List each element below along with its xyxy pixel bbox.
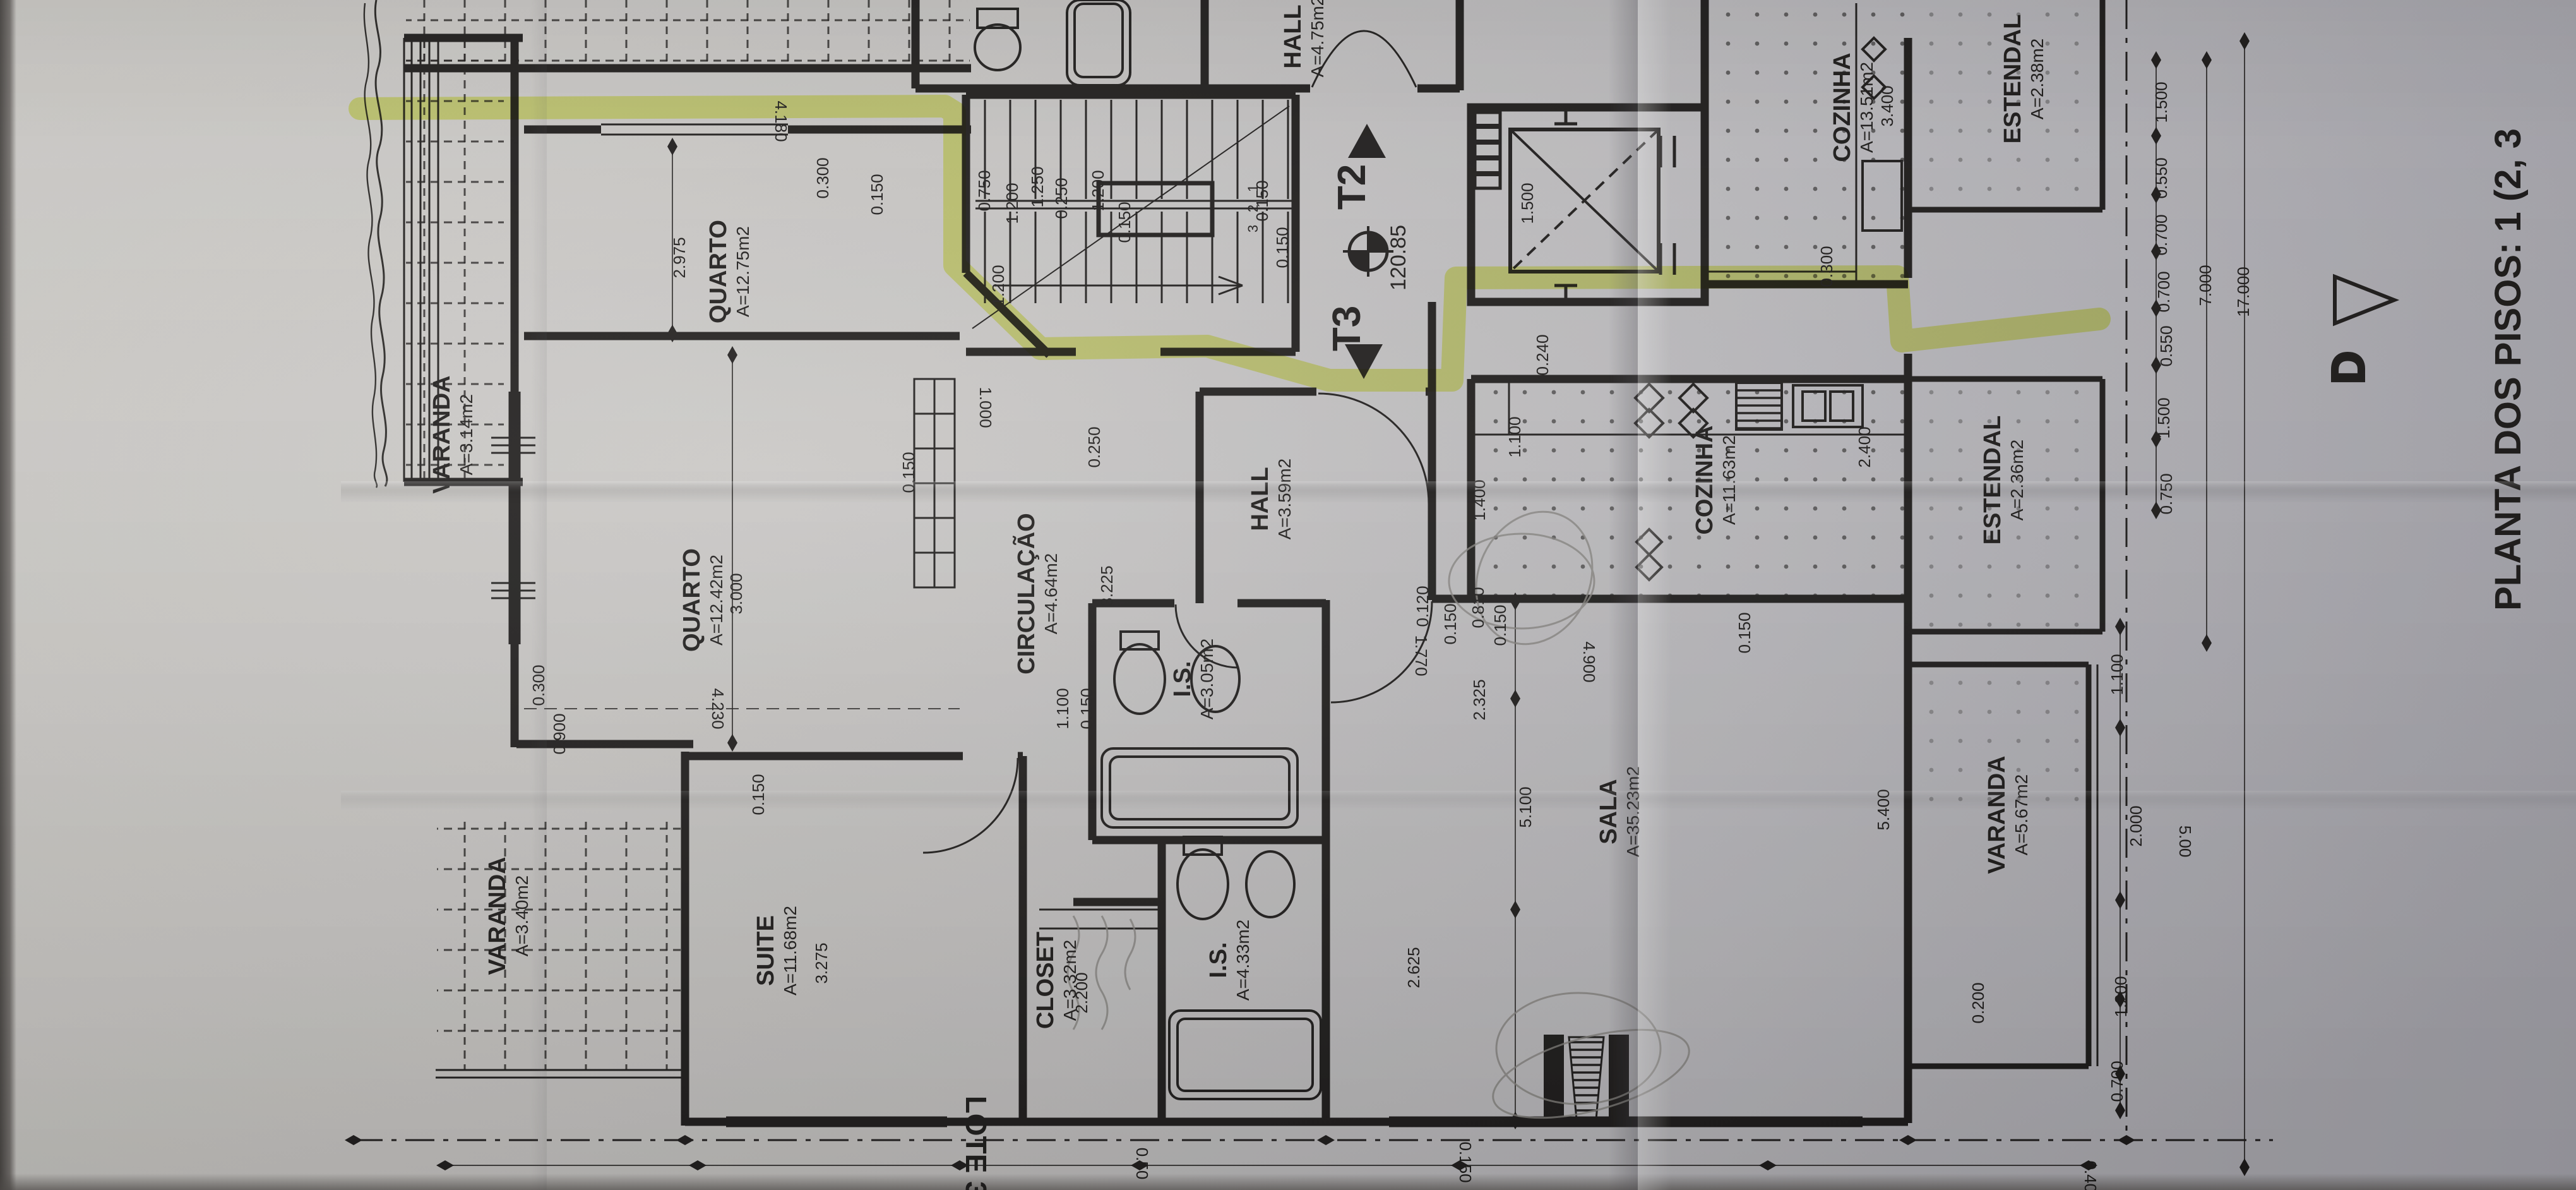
dim-label: 1.200 [2111, 976, 2130, 1017]
stair-direction-arrow [994, 277, 1243, 294]
dim-label: 0.150 [1273, 227, 1292, 268]
room-label: COZINHA [1691, 425, 1718, 534]
dim-label: 0.150 [1491, 604, 1510, 646]
dim-label: 7.000 [2196, 265, 2215, 306]
dim-label: 3.275 [812, 942, 831, 983]
dim-label: 3.000 [727, 573, 746, 614]
room-area-label: A=4.75m2 [1308, 0, 1327, 77]
room-label: I.S. [1205, 942, 1232, 978]
dim-label: 2.000 [2126, 805, 2145, 846]
dim-label: 0.120 [1413, 586, 1432, 627]
bathtub-icon [1102, 748, 1297, 827]
dishwasher-icon [1736, 383, 1782, 430]
room-area-label: A=12.75m2 [733, 226, 753, 317]
room-area-label: A=11.68m2 [780, 906, 800, 995]
room-area-label: A=12.42m2 [707, 555, 726, 646]
dim-label: 2.325 [1470, 679, 1489, 720]
room-label: CIRCULAÇÃO [1012, 513, 1040, 674]
dim-label: 0.900 [550, 713, 569, 754]
dim-label: 2.975 [670, 237, 689, 278]
stair-number: 2 [1245, 205, 1261, 212]
dim-label: 4.180 [772, 100, 790, 141]
unit-t2-label: T2 [1330, 164, 1374, 210]
stair-number: 1 [1245, 184, 1261, 192]
room-label: VARANDA [1984, 755, 2010, 874]
dim-label: 2.625 [1404, 947, 1423, 988]
dim-label: 0.150 [1735, 612, 1754, 653]
dim-label: 1.770 [1412, 635, 1431, 676]
unit-t3-label: T3 [1325, 306, 1369, 351]
bidet-icon [1246, 851, 1294, 917]
dim-label: 0.750 [975, 170, 994, 211]
room-area-label: A=4.64m2 [1041, 553, 1061, 634]
upper-kitchen-tile-dots [1708, 3, 1907, 281]
room-label: I.S. [1169, 661, 1196, 697]
balcony-hatch-bottom [437, 816, 683, 1070]
dim-label: 0.700 [2154, 271, 2173, 312]
dim-label: 5.00 [2176, 826, 2195, 858]
dim-label: 3.400 [1878, 85, 1897, 126]
dim-label: 0.550 [2157, 325, 2176, 366]
room-label: CLOSET [1032, 932, 1059, 1029]
dim-label: 0.300 [813, 157, 832, 198]
section-letter: D [2323, 351, 2374, 384]
floor-plan-photo: VARANDAA=3.14m2QUARTOA=12.75m2QUARTOA=12… [0, 0, 2576, 1190]
room-label: QUARTO [679, 548, 705, 652]
dim-label: 1.000 [976, 387, 995, 428]
dim-label: 2.200 [1072, 972, 1091, 1013]
room-area-label: A=3.14m2 [456, 394, 476, 475]
section-marker-icon [2335, 277, 2394, 323]
dim-label: 2.400 [1855, 426, 1874, 467]
dim-label: 1.100 [1053, 688, 1072, 729]
torn-edge-sketch [364, 0, 387, 488]
toilet-tank-icon [1121, 632, 1159, 649]
level-value: 120.85 [1386, 225, 1410, 291]
dim-label: 0.150 [868, 174, 886, 215]
top-balcony-hatch [406, 0, 970, 66]
room-area-label: A=13.51m2 [1857, 62, 1876, 153]
room-label: VARANDA [429, 375, 455, 493]
room-area-label: A=3.40m2 [512, 875, 532, 956]
dim-label: 0.200 [1969, 982, 1988, 1023]
room-label: ESTENDAL [1979, 416, 2006, 545]
floor-plan-svg: VARANDAA=3.14m2QUARTOA=12.75m2QUARTOA=12… [0, 0, 2576, 1190]
room-label: ESTENDAL [2000, 15, 2026, 144]
dim-label: 1.200 [989, 265, 1008, 306]
drawing-title: PLANTA DOS PISOS: 1 (2, 3 [2488, 128, 2529, 611]
bathtub-icon [1169, 1011, 1321, 1099]
dim-label: 4.900 [1580, 641, 1599, 682]
dim-label: 1.200 [1003, 183, 1022, 224]
dim-label: 0.810 [1469, 587, 1488, 628]
room-label: COZINHA [1829, 52, 1856, 162]
dim-label: 4.230 [708, 688, 727, 729]
dim-label: 0.50 [1133, 1148, 1152, 1180]
room-area-label: A=2.36m2 [2007, 440, 2027, 520]
dim-label: 3.225 [1097, 565, 1116, 606]
dim-label: 17.000 [2234, 267, 2253, 317]
dim-label: 0.300 [1817, 246, 1836, 287]
room-label: VARANDA [484, 856, 511, 975]
room-label: SUITE [753, 915, 779, 986]
room-area-label: A=3.05m2 [1197, 639, 1217, 719]
dim-label: 0.700 [2152, 214, 2171, 255]
stair-number: 3 [1245, 225, 1261, 232]
room-area-label: A=5.67m2 [2012, 774, 2031, 855]
dim-label: 1.500 [2152, 81, 2171, 123]
dim-label: 0.240 [1533, 334, 1552, 375]
dim-label: 1.100 [2108, 654, 2126, 695]
dim-label: 1.250 [1028, 166, 1047, 207]
dim-label: 0.250 [1052, 177, 1071, 219]
lot-label: LOTE 31 [960, 1096, 993, 1190]
dim-label: 0.150 [1456, 1141, 1475, 1182]
toilet-icon [975, 25, 1020, 70]
level-marker-icon [1343, 226, 1393, 277]
dim-label: 0.250 [1085, 426, 1104, 467]
dim-label: 0.150 [1441, 603, 1460, 644]
room-area-label: A=4.33m2 [1233, 920, 1253, 1001]
room-area-label: A=11.63m2 [1719, 435, 1739, 525]
dim-label: 0.400 [2081, 1160, 2100, 1190]
room-area-label: A=2.38m2 [2027, 39, 2047, 119]
room-label: QUARTO [705, 220, 732, 323]
dim-label: 1.100 [1505, 416, 1524, 457]
dim-label: 1.500 [2154, 397, 2173, 438]
dim-label: 0.700 [2108, 1061, 2126, 1102]
toilet-icon [1114, 644, 1165, 714]
dim-label: 1.200 [1088, 170, 1107, 211]
toilet-icon [1178, 850, 1228, 919]
dim-label: 1.500 [1518, 183, 1537, 224]
dim-label: 0.150 [1115, 201, 1134, 243]
dim-label: 0.150 [1077, 688, 1096, 729]
room-label: HALL [1280, 4, 1306, 68]
t2-arrow-icon [1348, 124, 1386, 158]
dim-label: 0.550 [2152, 157, 2171, 198]
